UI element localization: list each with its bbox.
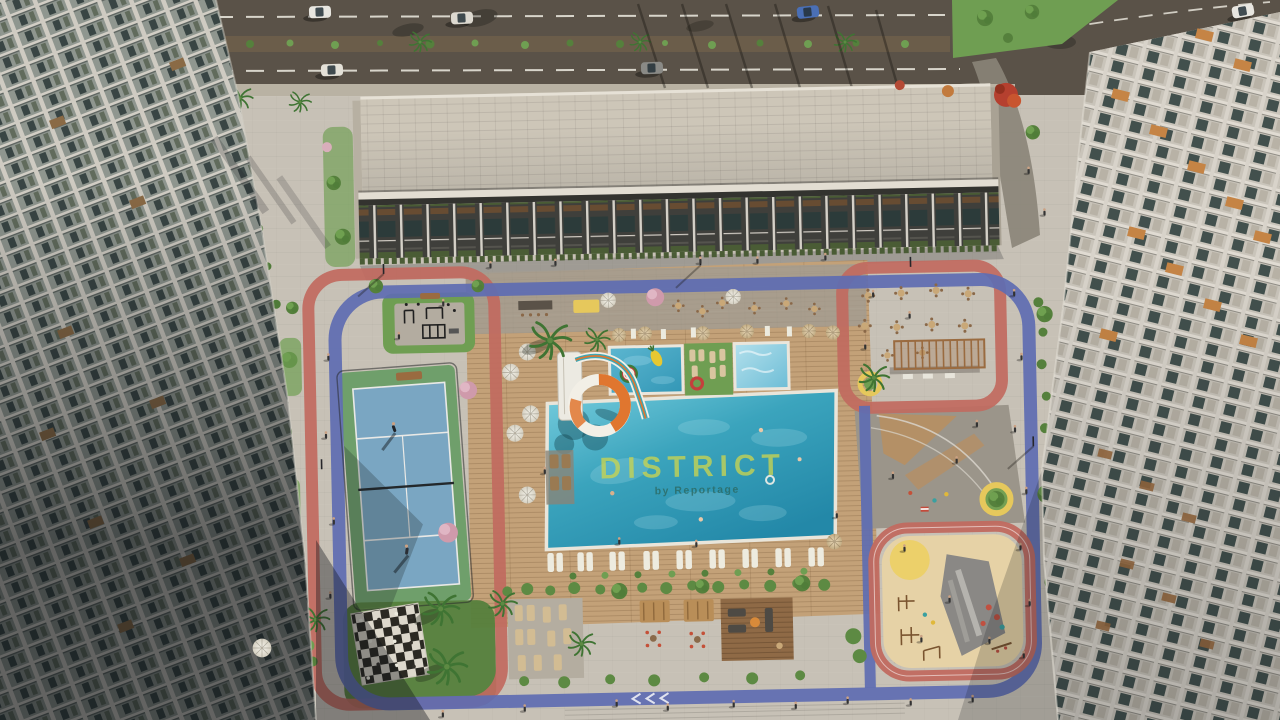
pool-brand-watermark: DISTRICT	[599, 449, 786, 486]
yellow-bench	[573, 299, 599, 313]
main-pool: DISTRICT by Reportage	[543, 391, 839, 550]
sofa-lounge-cluster	[721, 597, 794, 660]
pool-lawn	[684, 343, 733, 396]
pool-brand-byline: by Reportage	[655, 484, 740, 498]
tree-planter-circle	[982, 485, 1011, 514]
scene-svg: DISTRICT by Reportage	[0, 0, 1280, 720]
splash-pool	[734, 342, 789, 389]
aerial-render-scene: DISTRICT by Reportage	[0, 0, 1280, 720]
pool-bar-counter	[518, 300, 552, 310]
clubhouse-building	[352, 83, 1004, 281]
